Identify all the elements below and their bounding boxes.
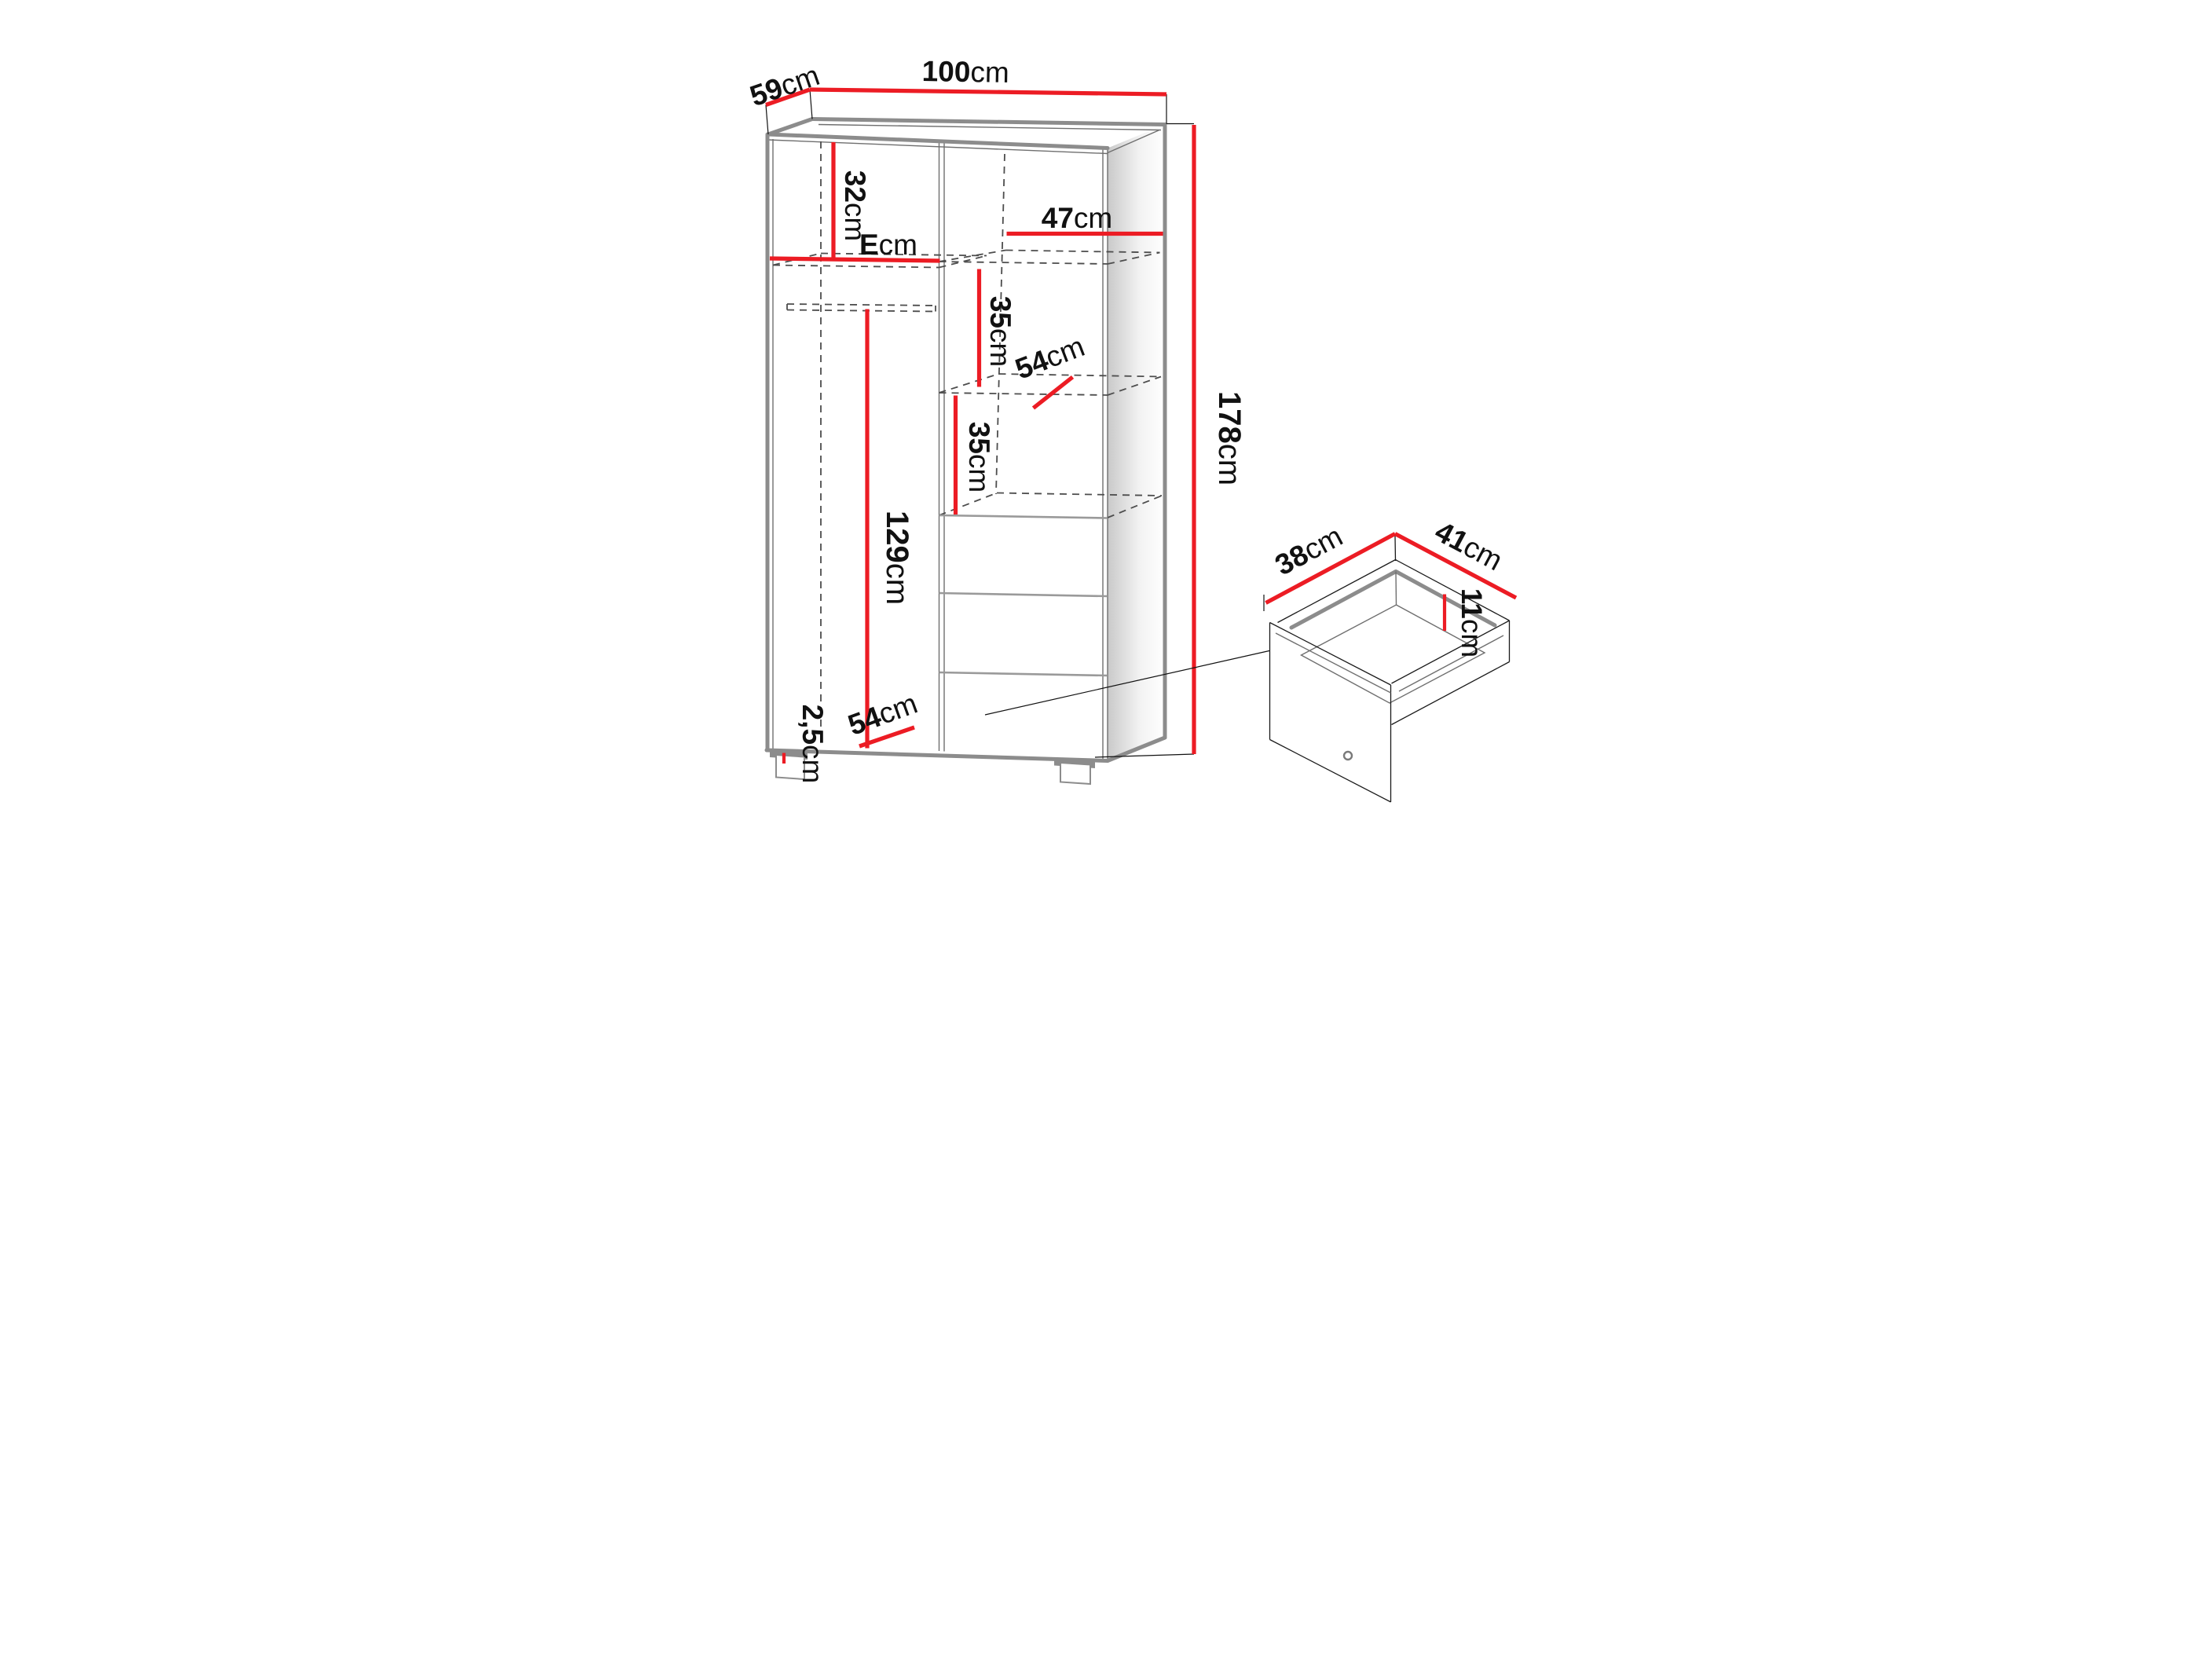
wardrobe-right-side-face — [1108, 125, 1165, 761]
label-54cm-bottom: 54cm — [844, 687, 921, 742]
front-panel-screw-hole — [1344, 752, 1352, 760]
rail-top-hidden — [787, 304, 936, 306]
drawer-separator-1 — [939, 593, 1108, 596]
left-shelf-front-hidden — [773, 266, 939, 268]
dim-line-100cm — [810, 90, 1166, 94]
label-54cm-shelf: 54cm — [1011, 330, 1089, 386]
drawer-apex-extension — [1395, 536, 1396, 561]
drawer-back-corner-inner — [1396, 572, 1397, 606]
wardrobe-dimension-diagram: 59cm 100cm 32cm Ecm 47cm 35cm 54cm 35cm … — [553, 0, 1659, 829]
right-shelf2-left-hidden — [939, 374, 999, 393]
label-35cm-lower: 35cm — [963, 422, 995, 493]
right-foot — [1060, 763, 1090, 784]
dim-line-54cm-shelf — [1034, 377, 1073, 408]
right-shelf3-left-hidden — [939, 493, 998, 516]
label-178cm: 178cm — [1212, 391, 1247, 485]
label-100cm: 100cm — [921, 55, 1009, 89]
label-47cm: 47cm — [1042, 202, 1112, 234]
label-11cm: 11cm — [1456, 588, 1488, 657]
diagram-canvas: 59cm 100cm 32cm Ecm 47cm 35cm 54cm 35cm … — [553, 0, 1659, 829]
label-59cm: 59cm — [745, 59, 823, 112]
drawer-top-edge — [939, 515, 1108, 518]
label-Ecm: Ecm — [859, 229, 917, 261]
right-shelf1-front-hidden — [939, 262, 1108, 264]
drawer-separator-2 — [939, 672, 1108, 676]
label-38cm: 38cm — [1270, 520, 1348, 582]
right-shelf2-front-hidden — [939, 393, 1108, 395]
label-2-5cm: 2,5cm — [797, 705, 829, 784]
ext-59-left — [766, 105, 768, 135]
drawer-fronts — [939, 515, 1108, 676]
label-41cm: 41cm — [1430, 515, 1507, 577]
rail-bottom-hidden — [787, 310, 936, 312]
drawer-detail — [1264, 534, 1516, 803]
label-129cm: 129cm — [880, 511, 914, 605]
